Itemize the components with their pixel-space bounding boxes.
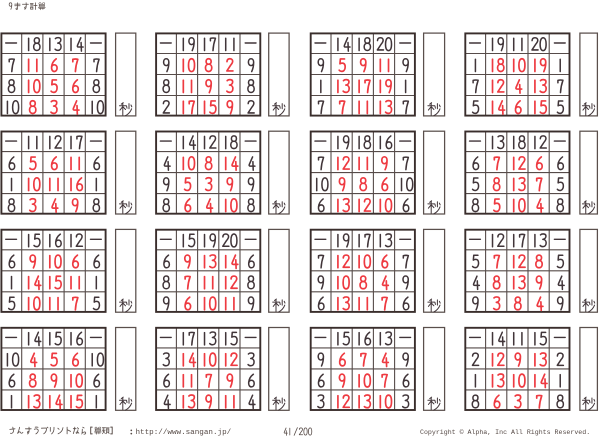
svg-text:Copyright © Alpha, Inc All Rig: Copyright © Alpha, Inc All Rights Reserv… <box>420 428 590 436</box>
svg-text:http://www.sangan.jp/: http://www.sangan.jp/ <box>136 429 232 437</box>
